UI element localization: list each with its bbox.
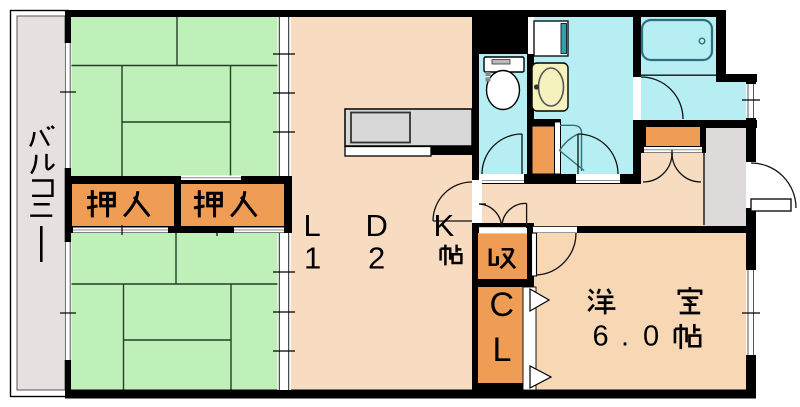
svg-text:K: K <box>434 208 455 243</box>
svg-text:0: 0 <box>643 321 659 353</box>
svg-text:L: L <box>493 331 512 369</box>
svg-text:C: C <box>490 286 515 324</box>
svg-text:.: . <box>621 321 629 353</box>
svg-text:2: 2 <box>368 241 385 276</box>
svg-text:D: D <box>366 208 388 243</box>
svg-text:L: L <box>304 208 321 243</box>
svg-text:6: 6 <box>593 321 609 353</box>
svg-text:1: 1 <box>304 241 321 276</box>
